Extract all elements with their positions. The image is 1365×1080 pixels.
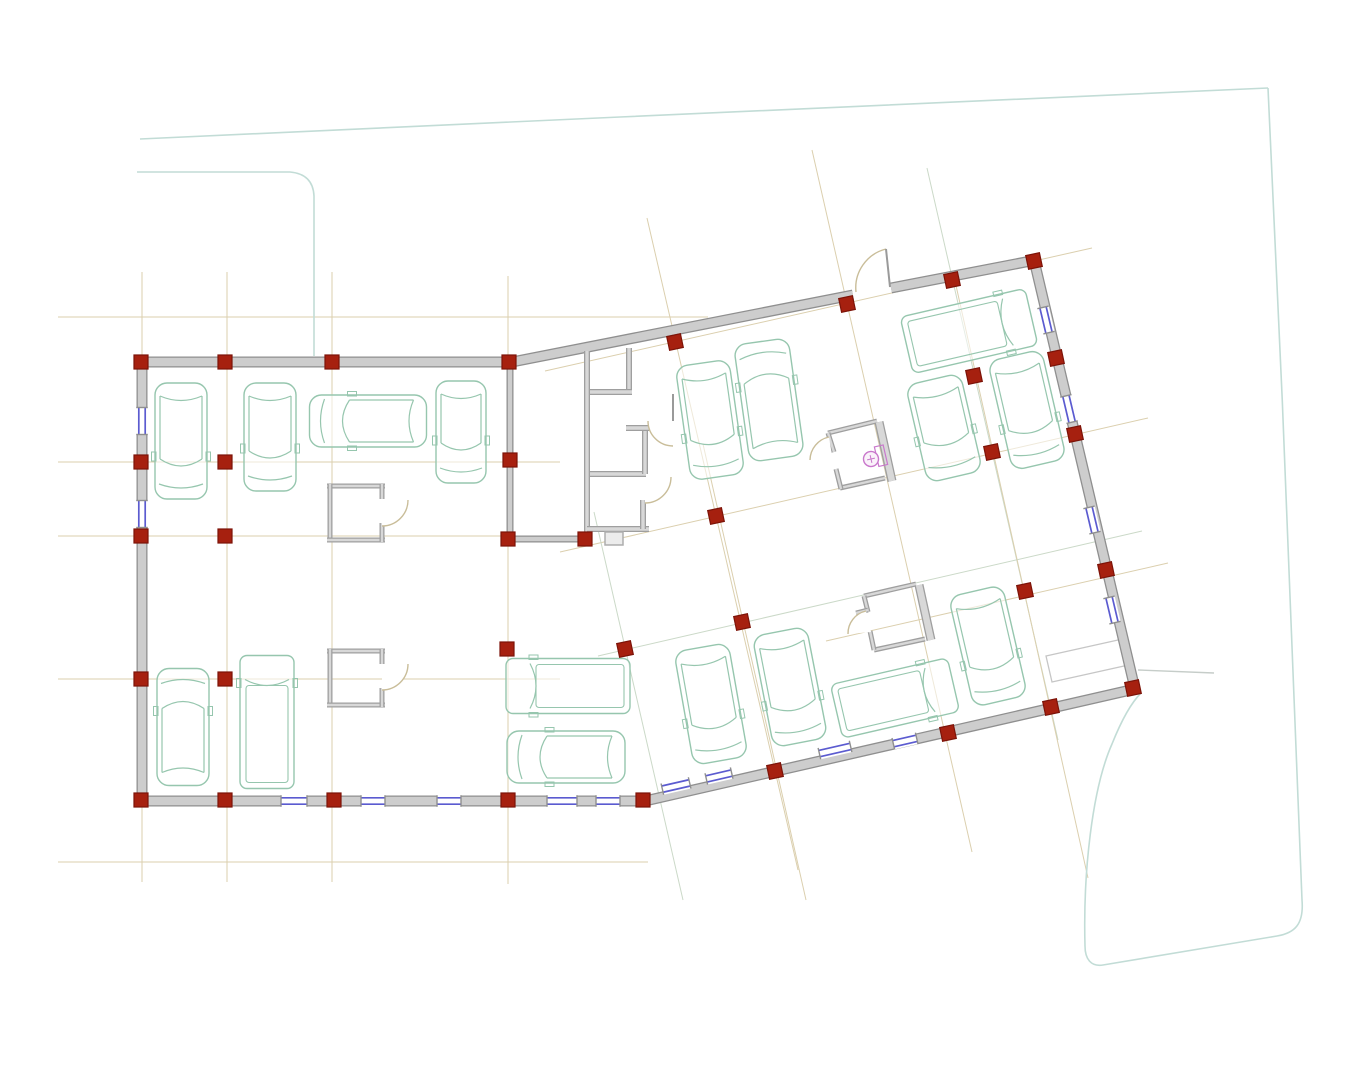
window-marker (136, 408, 148, 435)
vehicle-body (734, 338, 805, 463)
car (310, 392, 427, 451)
door-swing (645, 477, 671, 503)
wall-fill (828, 421, 877, 433)
column-marker (984, 444, 1001, 461)
car (902, 372, 986, 484)
column-marker (1026, 253, 1043, 270)
vehicle-body (436, 381, 486, 483)
vehicle-body (948, 585, 1027, 707)
car (507, 728, 625, 787)
door-swing (382, 664, 408, 690)
wall-fill (840, 478, 885, 488)
car (749, 626, 831, 749)
window-marker (1060, 395, 1078, 424)
wall-segment (874, 639, 925, 650)
window-marker (361, 795, 385, 807)
wall-segment (864, 584, 916, 596)
window-gap (437, 795, 461, 807)
column-marker (134, 793, 148, 807)
floor-plan-page (0, 0, 1365, 1080)
duct-tab (605, 532, 623, 545)
wall-segment (836, 469, 841, 489)
vehicle-body (244, 383, 296, 491)
column-marker (1043, 699, 1060, 716)
wall-segment (919, 585, 931, 640)
column-marker (134, 455, 148, 469)
column-marker (503, 453, 517, 467)
column-marker (325, 355, 339, 369)
window-gap (281, 795, 307, 807)
car (730, 337, 808, 462)
column-marker (617, 641, 634, 658)
column-marker (501, 532, 515, 546)
column-marker (1067, 426, 1084, 443)
vehicle-body (674, 643, 748, 766)
column-marker (218, 455, 232, 469)
door-swing (856, 249, 890, 292)
car (241, 383, 300, 491)
column-marker (767, 763, 784, 780)
column-marker (1098, 562, 1115, 579)
door-swing (382, 500, 408, 526)
car (672, 359, 748, 481)
window-gap (596, 795, 620, 807)
column-marker (1048, 350, 1065, 367)
column-marker (1017, 583, 1034, 600)
column-marker (966, 368, 983, 385)
window-marker (892, 733, 918, 750)
wall-fill (864, 584, 916, 596)
column-marker (940, 725, 957, 742)
wall-segment (512, 295, 853, 362)
column-marker (134, 529, 148, 543)
column-marker (578, 532, 592, 546)
site-boundary-path (1085, 88, 1303, 965)
column-marker (218, 672, 232, 686)
column-marker (134, 355, 148, 369)
site-boundary-path (137, 172, 314, 356)
vehicle-body (752, 626, 828, 747)
column-marker (734, 614, 751, 631)
window-gap (547, 795, 577, 807)
wall-segment (840, 478, 885, 488)
vehicle-body (506, 659, 630, 714)
car (152, 383, 211, 499)
wall-fill (874, 639, 925, 650)
window-marker (437, 795, 461, 807)
vehicle-body (830, 658, 959, 739)
column-marker (708, 508, 725, 525)
window-gap (136, 408, 148, 435)
van (506, 655, 630, 717)
door-swing (648, 394, 673, 446)
window-marker (136, 501, 148, 528)
column-marker (218, 793, 232, 807)
column-marker (500, 642, 514, 656)
column-marker (944, 272, 961, 289)
column-marker (134, 672, 148, 686)
site-boundary-path (140, 88, 1268, 139)
column-marker (502, 355, 516, 369)
site-edge-line (1138, 670, 1214, 673)
duct-tab-rect (605, 532, 623, 545)
wall-segment (879, 422, 892, 481)
wall-segment (891, 260, 1036, 288)
column-marker (218, 529, 232, 543)
column-marker (667, 334, 684, 351)
window-gap (361, 795, 385, 807)
column-marker (636, 793, 650, 807)
van (237, 656, 298, 789)
column-marker (839, 296, 856, 313)
floor-plan-canvas (0, 0, 1365, 1080)
window-marker (596, 795, 620, 807)
door-swing (848, 611, 871, 634)
window-marker (547, 795, 577, 807)
column-marker (501, 793, 515, 807)
wall-segment (828, 421, 877, 433)
wall-segment (870, 631, 874, 650)
site-boundary-lines (137, 88, 1302, 965)
car (433, 381, 490, 483)
wall-fill (512, 295, 853, 362)
vehicle-body (905, 373, 982, 483)
column-marker (327, 793, 341, 807)
column-marker (1125, 680, 1142, 697)
vehicle-body (675, 359, 744, 480)
window-marker (281, 795, 307, 807)
window-gap (136, 501, 148, 528)
car (154, 669, 213, 786)
wall-fill (891, 260, 1036, 288)
car (670, 642, 751, 766)
car (945, 584, 1031, 708)
vehicle-body (240, 656, 294, 789)
column-marker (218, 355, 232, 369)
